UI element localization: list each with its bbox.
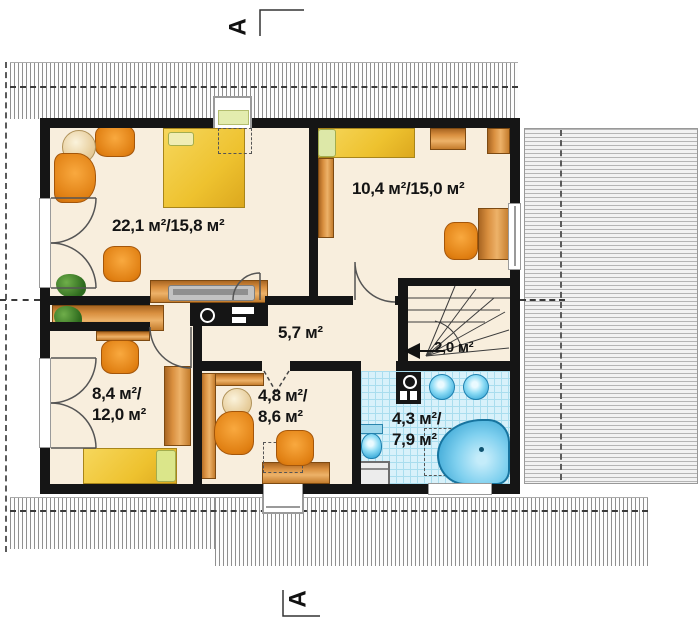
- bed-pillow: [156, 450, 176, 482]
- section-marker-bottom: A: [285, 590, 313, 607]
- office-chair: [276, 430, 314, 466]
- room-label-hall: 5,7 м²: [278, 322, 323, 343]
- wall-hall-north: [50, 296, 150, 305]
- dormer-window-bottom: [262, 482, 304, 514]
- heater-panel: [410, 391, 417, 400]
- kitchen-sink: [168, 285, 255, 301]
- roof-hatch-top: [10, 62, 518, 119]
- section-line-top: [260, 10, 304, 36]
- room-label-line: 8,6 м²: [258, 406, 307, 427]
- wall-bedroom-small-north: [50, 322, 150, 331]
- burner-icon: [200, 308, 215, 323]
- sink-basin: [173, 289, 248, 295]
- ridge-dash-left: [0, 299, 40, 301]
- room-label-bedroom-small: 8,4 м²/ 12,0 м²: [92, 383, 146, 425]
- wall-bedroom-right-south: [318, 296, 353, 305]
- balcony-door-frame: [39, 358, 51, 448]
- office-chair: [444, 222, 478, 260]
- wall-bedroom-study: [193, 322, 202, 484]
- armchair: [54, 153, 96, 203]
- chair: [103, 246, 141, 282]
- window-bathroom: [428, 483, 492, 495]
- wall-right: [510, 118, 520, 203]
- wall-between-bedrooms: [309, 128, 318, 305]
- room-label-stairs: 2,0 м²: [434, 337, 473, 358]
- washbasin: [463, 374, 489, 400]
- room-label-bedroom-large: 22,1 м²/15,8 м²: [112, 215, 224, 236]
- dormer-window-top: [213, 96, 252, 130]
- room-label-line: 7,9 м²: [392, 429, 441, 450]
- clearance-dashed-outline: [218, 128, 252, 154]
- tub-drain: [479, 447, 484, 452]
- washer-line: [361, 468, 388, 470]
- wall-top: [252, 118, 520, 128]
- water-heater: [396, 372, 421, 404]
- window-right: [508, 203, 521, 270]
- wall-left: [40, 118, 50, 198]
- room-label-line: 12,0 м²: [92, 404, 146, 425]
- dresser: [430, 128, 466, 150]
- roof-eave-dash-bottom: [10, 510, 648, 512]
- heater-dial-icon: [403, 375, 417, 389]
- washbasin: [429, 374, 455, 400]
- desk: [478, 208, 510, 260]
- roof-eave-dash-top: [10, 86, 518, 88]
- balcony-door-frame: [39, 198, 51, 288]
- bed-pillow: [318, 129, 336, 157]
- toilet-bowl: [361, 433, 382, 459]
- wall-bottom: [40, 484, 263, 494]
- window-mullion: [514, 206, 516, 266]
- roof-edge-dash-left: [5, 62, 7, 552]
- cooktop-control: [232, 317, 246, 323]
- wall-study-north: [197, 361, 262, 371]
- wall-hall-north: [265, 296, 309, 305]
- section-marker-top: A: [225, 18, 253, 35]
- wall-study-north: [290, 361, 352, 371]
- wall-bathroom-north: [396, 361, 510, 371]
- wall-study-bathroom: [352, 361, 361, 484]
- room-label-study: 4,8 м²/ 8,6 м²: [258, 385, 307, 427]
- wall-bottom: [303, 484, 428, 494]
- wall-top: [40, 118, 213, 128]
- room-label-bathroom: 4,3 м²/ 7,9 м²: [392, 408, 441, 450]
- wardrobe: [164, 366, 191, 446]
- roof-hatch-right: [524, 128, 698, 484]
- wall-stair-west: [398, 278, 408, 370]
- bed-pillow: [168, 132, 194, 146]
- roof-hatch-bottom-left: [10, 497, 215, 549]
- dormer-seat: [218, 110, 249, 125]
- corner-cabinet: [487, 128, 510, 154]
- heater-panel: [400, 391, 407, 400]
- cooktop-control: [232, 307, 254, 314]
- office-chair: [101, 340, 139, 374]
- roof-dash-right: [560, 130, 562, 480]
- room-label-line: 4,3 м²/: [392, 408, 441, 429]
- armchair: [95, 125, 135, 157]
- floor-plan: 22,1 м²/15,8 м² 10,4 м²/15,0 м² 5,7 м² 2…: [0, 0, 700, 627]
- room-label-line: 4,8 м²/: [258, 385, 307, 406]
- wall-left: [40, 288, 50, 358]
- wall-stair-north: [398, 278, 510, 286]
- kitchen-counter: [150, 280, 268, 303]
- ridge-dash-right: [520, 299, 565, 301]
- room-label-bedroom-right: 10,4 м²/15,0 м²: [352, 178, 464, 199]
- wardrobe: [318, 158, 334, 238]
- dormer-glazing-line: [266, 506, 300, 508]
- room-label-line: 8,4 м²/: [92, 383, 146, 404]
- wall-right: [510, 270, 520, 494]
- armchair: [214, 411, 254, 455]
